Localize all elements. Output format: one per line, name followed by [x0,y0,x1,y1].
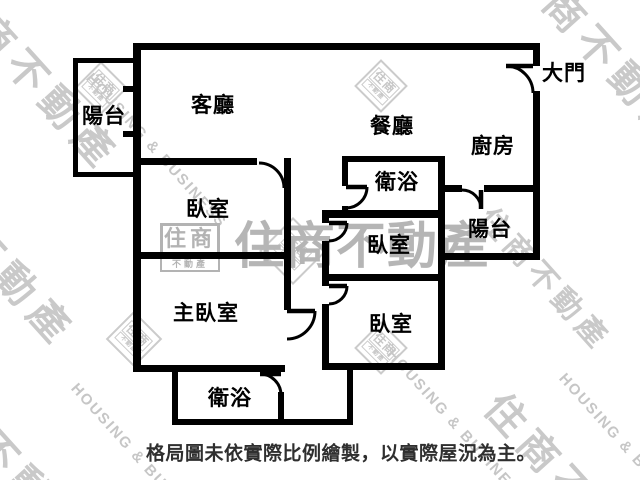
room-label-bathroom-upper: 衛浴 [375,166,419,196]
room-label-master-bedroom: 主臥室 [173,297,239,327]
room-label-bedroom-middle: 臥室 [367,229,411,259]
floorplan-image: 住商不動產 住商不動產 住商不動產 住商不動產 住商不動產 住商不動產 HOUS… [0,0,640,480]
bathroom-upper-door [346,187,367,208]
room-label-bedroom-bottom: 臥室 [369,308,413,338]
room-label-main-door: 大門 [542,57,586,87]
room-label-balcony-right: 陽台 [468,213,512,243]
balcony-right-door [462,190,481,209]
room-label-bedroom-left: 臥室 [186,193,230,223]
bedroom-left-door [259,162,287,189]
room-label-living-room: 客廳 [191,89,235,119]
room-label-kitchen: 廚房 [471,130,515,160]
room-label-dining-room: 餐廳 [370,110,414,140]
room-label-bathroom-lower: 衛浴 [208,382,252,412]
master-bedroom-door [287,311,315,339]
bathroom-lower-door [260,374,281,395]
bedroom-middle-door [329,223,347,241]
bedroom-bottom-door [329,286,347,304]
main-entry-door [506,66,533,93]
disclaimer-caption: 格局圖未依實際比例繪製，以實際屋況為主。 [146,439,536,466]
room-label-balcony-left: 陽台 [82,100,126,130]
